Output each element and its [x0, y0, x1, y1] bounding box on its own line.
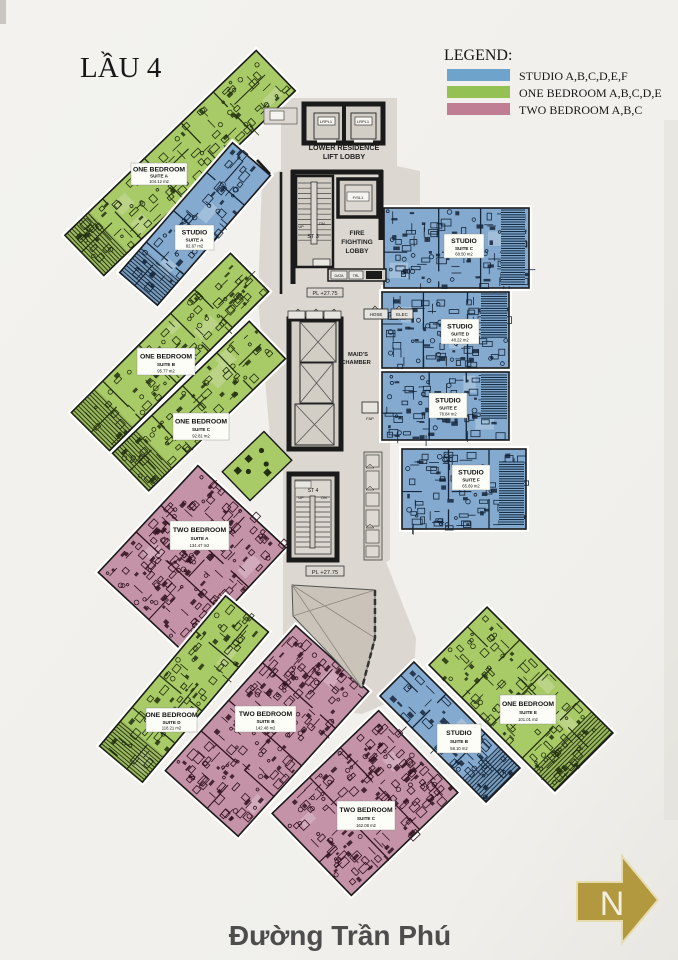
svg-text:ONE BEDROOM: ONE BEDROOM: [502, 701, 554, 708]
svg-text:SUITE D: SUITE D: [162, 720, 181, 725]
svg-text:118.21 m2: 118.21 m2: [162, 726, 182, 731]
svg-text:134.47 m2: 134.47 m2: [190, 543, 210, 548]
svg-text:ONE BEDROOM: ONE BEDROOM: [175, 418, 227, 425]
svg-text:SUITE A: SUITE A: [150, 174, 169, 179]
svg-text:UP: UP: [298, 225, 304, 229]
svg-text:SUITE A: SUITE A: [186, 238, 205, 243]
svg-text:58.10 m2: 58.10 m2: [450, 746, 468, 751]
svg-text:92.81 m2: 92.81 m2: [192, 433, 210, 438]
svg-text:SUITE C: SUITE C: [192, 427, 211, 432]
svg-text:UP: UP: [298, 496, 304, 500]
svg-text:162.08 m2: 162.08 m2: [356, 823, 376, 828]
svg-text:DN: DN: [321, 496, 327, 500]
svg-text:SUITE F: SUITE F: [462, 478, 480, 483]
svg-text:STUDIO A,B,C,D,E,F: STUDIO A,B,C,D,E,F: [519, 69, 628, 83]
svg-text:TWO BEDROOM A,B,C: TWO BEDROOM A,B,C: [519, 103, 642, 117]
svg-text:ONE BEDROOM A,B,C,D,E: ONE BEDROOM A,B,C,D,E: [519, 86, 662, 100]
svg-text:ONE BEDROOM: ONE BEDROOM: [133, 166, 185, 173]
svg-text:LRPL1: LRPL1: [320, 119, 333, 124]
svg-text:CHAMBER: CHAMBER: [341, 360, 371, 366]
svg-text:SUITE B: SUITE B: [157, 362, 176, 367]
svg-text:STUDIO: STUDIO: [451, 238, 477, 245]
svg-text:95.77 m2: 95.77 m2: [157, 368, 175, 373]
svg-text:68.50 m2: 68.50 m2: [455, 252, 473, 257]
svg-text:FAP: FAP: [366, 416, 374, 421]
svg-text:LIFT LOBBY: LIFT LOBBY: [323, 152, 366, 161]
svg-text:48.22 m2: 48.22 m2: [451, 338, 469, 343]
svg-text:STUDIO: STUDIO: [458, 470, 484, 477]
svg-text:PL +27.75: PL +27.75: [312, 570, 338, 576]
svg-text:STUDIO: STUDIO: [446, 730, 472, 737]
svg-text:SUITE B: SUITE B: [450, 739, 469, 744]
svg-text:TWO BEDROOM: TWO BEDROOM: [239, 711, 293, 718]
svg-text:SUITE B: SUITE B: [256, 719, 275, 724]
svg-text:SUITE E: SUITE E: [519, 710, 537, 715]
svg-text:SUITE C: SUITE C: [455, 246, 474, 251]
svg-text:LRPL1: LRPL1: [357, 119, 370, 124]
svg-text:ONE BEDROOM: ONE BEDROOM: [140, 353, 192, 360]
svg-text:SUITE C: SUITE C: [357, 816, 376, 821]
svg-text:SUITE D: SUITE D: [451, 332, 470, 337]
svg-text:82.67 m2: 82.67 m2: [186, 244, 204, 249]
svg-text:STUDIO: STUDIO: [435, 398, 461, 405]
svg-text:STUDIO: STUDIO: [447, 324, 473, 331]
svg-text:LẦU 4: LẦU 4: [80, 50, 162, 84]
svg-text:LOBBY: LOBBY: [345, 248, 369, 255]
svg-text:78.84 m2: 78.84 m2: [439, 412, 457, 417]
svg-text:ONE BEDROOM: ONE BEDROOM: [145, 712, 197, 719]
svg-text:TWO BEDROOM: TWO BEDROOM: [173, 527, 227, 534]
svg-text:SUITE A: SUITE A: [191, 536, 210, 541]
svg-text:STUDIO: STUDIO: [182, 230, 208, 237]
svg-text:N: N: [600, 885, 625, 923]
svg-text:Đường Trần Phú: Đường Trần Phú: [229, 920, 451, 951]
svg-text:65.69 m2: 65.69 m2: [462, 484, 480, 489]
svg-text:F/SL1: F/SL1: [353, 195, 364, 200]
svg-text:DATA: DATA: [334, 274, 344, 278]
svg-text:LEGEND:: LEGEND:: [444, 47, 512, 64]
svg-text:FIRE: FIRE: [349, 230, 365, 237]
svg-text:ST 3: ST 3: [307, 234, 319, 240]
svg-text:SUITE E: SUITE E: [439, 406, 457, 411]
svg-text:DN: DN: [319, 222, 325, 226]
svg-text:HOSE: HOSE: [370, 312, 383, 317]
svg-text:ST 4: ST 4: [308, 488, 319, 494]
svg-text:FIGHTING: FIGHTING: [341, 239, 373, 246]
svg-text:101.01 m2: 101.01 m2: [518, 717, 538, 722]
svg-text:104.12 m2: 104.12 m2: [149, 179, 169, 184]
svg-text:TRL: TRL: [353, 274, 360, 278]
svg-text:LOWER RESIDENCE: LOWER RESIDENCE: [309, 143, 380, 152]
svg-text:TWO BEDROOM: TWO BEDROOM: [339, 807, 393, 814]
svg-text:ELEC: ELEC: [396, 312, 409, 317]
svg-text:MAID'S: MAID'S: [348, 352, 368, 358]
svg-text:142.48 m2: 142.48 m2: [256, 725, 276, 730]
svg-text:PL +27.75: PL +27.75: [312, 291, 337, 297]
